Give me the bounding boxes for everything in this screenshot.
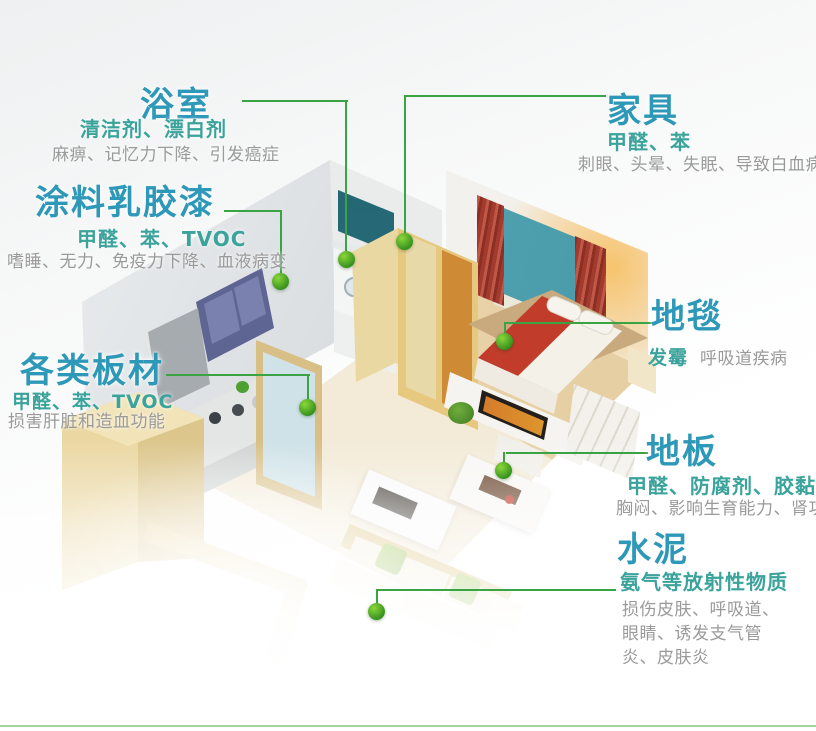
bottom-divider-line: [0, 725, 816, 727]
boards-title: 各类板材: [20, 354, 164, 388]
bathroom-marker-dot: [338, 251, 355, 268]
cement-subtitle: 氨气等放射性物质: [620, 572, 788, 592]
floor-marker-dot: [495, 462, 512, 479]
boards-marker-dot: [299, 399, 316, 416]
furniture-effects: 刺眼、头晕、失眠、导致白血病: [578, 155, 816, 176]
paint-connector-line: [224, 210, 282, 212]
carpet-effects: 呼吸道疾病: [700, 349, 788, 369]
cement-marker-dot: [368, 603, 385, 620]
cement-title: 水泥: [617, 533, 689, 567]
furniture-marker-dot: [396, 233, 413, 250]
carpet-detail-row: 发霉呼吸道疾病: [648, 343, 788, 370]
floor-connector-line: [506, 452, 648, 454]
bathroom-effects: 麻痹、记忆力下降、引发癌症: [52, 145, 280, 166]
bathroom-subtitle: 清洁剂、漂白剂: [80, 119, 227, 139]
paint-marker-dot: [272, 273, 289, 290]
furniture-connector-line: [404, 95, 406, 233]
furniture-title: 家具: [607, 94, 679, 128]
floor-subtitle: 甲醛、防腐剂、胶黏剂: [627, 476, 816, 496]
floor-effects: 胸闷、影响生育能力、肾功能: [616, 499, 816, 520]
carpet-connector-line: [506, 322, 652, 324]
cement-effects: 损伤皮肤、呼吸道、眼睛、诱发支气管炎、皮肤炎: [622, 598, 790, 670]
bathroom-connector-line: [345, 100, 347, 252]
cement-connector-line: [376, 589, 616, 591]
boards-connector-line: [307, 374, 309, 400]
bathroom-connector-line: [242, 100, 348, 102]
carpet-title: 地毯: [651, 300, 723, 334]
indoor-pollution-infographic: 浴室 清洁剂、漂白剂 麻痹、记忆力下降、引发癌症 涂料乳胶漆 甲醛、苯、TVOC…: [0, 0, 816, 731]
boards-effects: 损害肝脏和造血功能: [8, 412, 166, 433]
paint-title: 涂料乳胶漆: [35, 186, 215, 220]
boards-subtitle: 甲醛、苯、TVOC: [12, 393, 173, 412]
boards-connector-line: [166, 374, 310, 376]
carpet-marker-dot: [496, 333, 513, 350]
floor-title: 地板: [646, 435, 718, 469]
carpet-subtitle: 发霉: [648, 347, 688, 369]
paint-effects: 嗜睡、无力、免疫力下降、血液病变: [7, 252, 287, 273]
paint-subtitle: 甲醛、苯、TVOC: [77, 229, 246, 249]
furniture-connector-line: [404, 95, 606, 97]
furniture-subtitle: 甲醛、苯: [607, 132, 691, 152]
